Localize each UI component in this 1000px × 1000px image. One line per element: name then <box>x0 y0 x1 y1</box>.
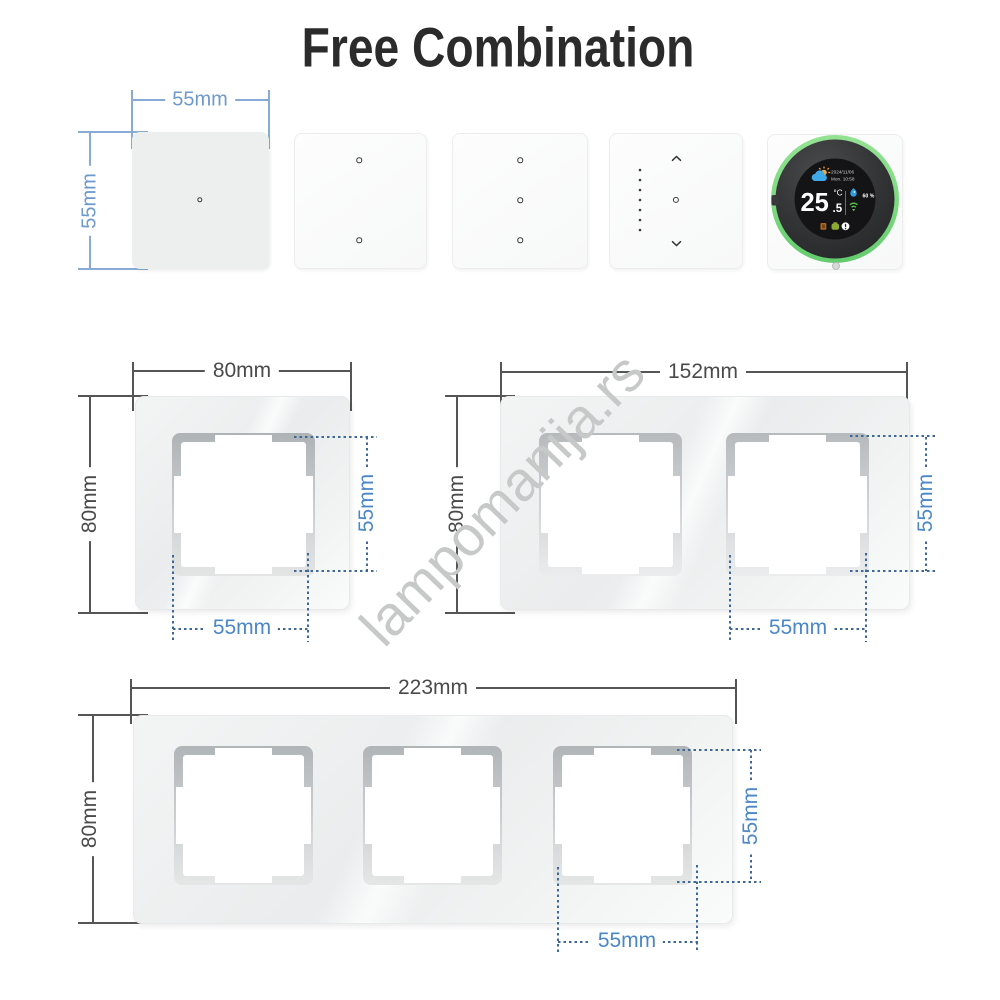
svg-text:.5: .5 <box>833 203 843 215</box>
svg-text:Mon. 10:58: Mon. 10:58 <box>831 177 855 182</box>
svg-text:2024/11/06: 2024/11/06 <box>831 170 855 175</box>
svg-text:°C: °C <box>834 189 843 198</box>
svg-text:60 %: 60 % <box>863 194 875 200</box>
svg-text:25: 25 <box>801 189 829 217</box>
